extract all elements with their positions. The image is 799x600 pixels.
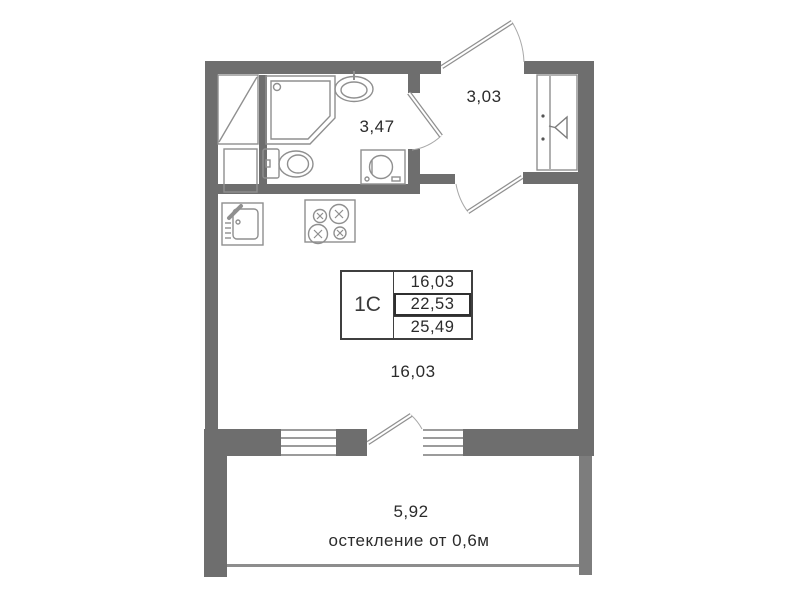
unit-area-table: 1С 16,03 22,53 25,49 <box>340 270 473 340</box>
hallway-area-label: 3,03 <box>466 87 501 107</box>
area-total-value: 22,53 <box>394 293 471 315</box>
balcony-glazing-note: остекление от 0,6м <box>329 531 490 551</box>
window-left-icon <box>281 429 336 456</box>
bathroom-area-label: 3,47 <box>359 117 394 137</box>
washing-machine-icon <box>361 150 405 184</box>
closet-icon <box>218 75 258 192</box>
toilet-icon <box>263 149 313 178</box>
shower-icon <box>266 76 335 144</box>
unit-type-label: 1С <box>342 272 394 338</box>
stove-icon <box>305 200 355 244</box>
living-room-area-label: 16,03 <box>390 362 435 382</box>
balcony-area-label: 5,92 <box>393 502 428 522</box>
entrance-door-icon <box>442 22 524 67</box>
area-living-value: 16,03 <box>394 272 471 293</box>
area-total-with-balcony-value: 25,49 <box>394 316 471 338</box>
bathroom-door-icon <box>409 93 441 150</box>
washbasin-icon <box>335 71 373 102</box>
kitchen-sink-icon <box>222 203 263 245</box>
window-right-icon <box>423 429 463 456</box>
wardrobe-niche <box>537 75 577 170</box>
floor-plan: 1С 16,03 22,53 25,49 3,47 3,03 16,03 5,9… <box>0 0 799 600</box>
room-door-icon <box>456 177 522 212</box>
balcony-door-icon <box>368 415 422 443</box>
